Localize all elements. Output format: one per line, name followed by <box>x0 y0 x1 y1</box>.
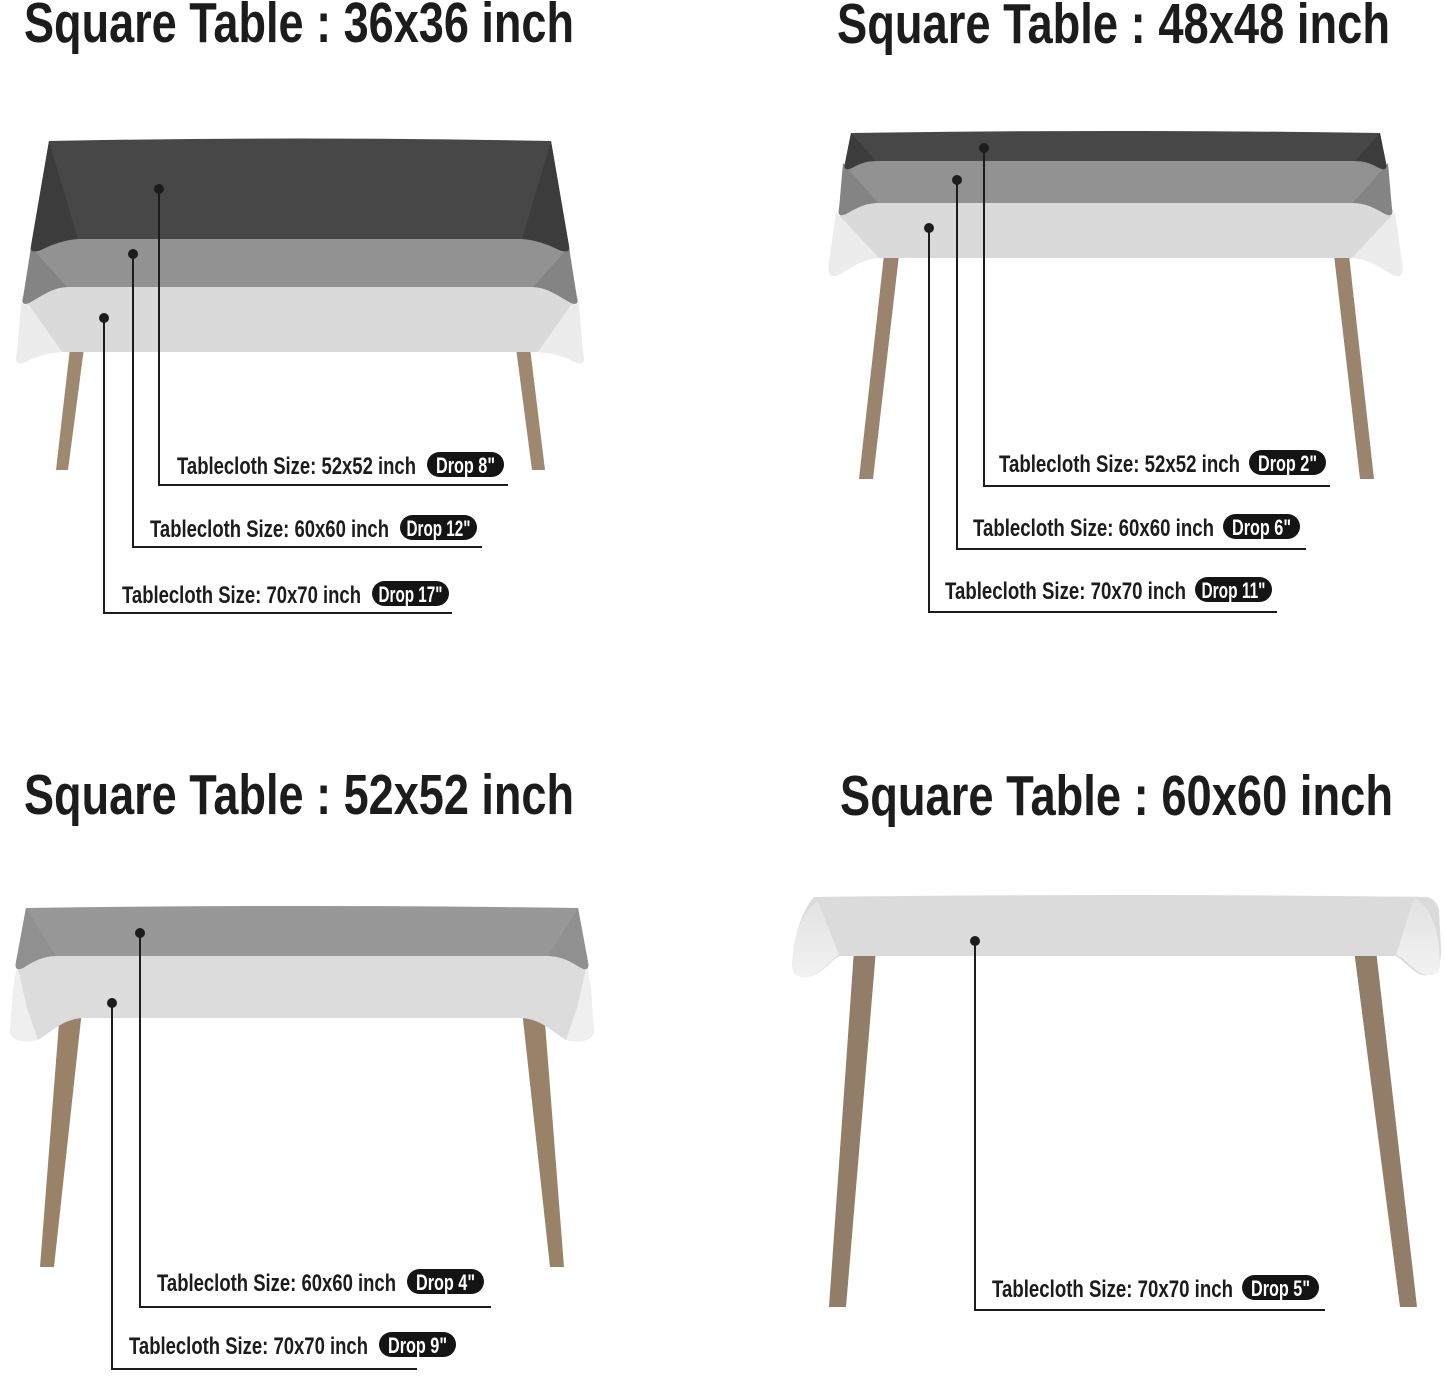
svg-text:Square Table : 60x60 inch: Square Table : 60x60 inch <box>840 764 1393 828</box>
svg-text:Drop 9": Drop 9" <box>388 1333 447 1358</box>
svg-text:Drop 11": Drop 11" <box>1202 578 1266 603</box>
svg-text:Tablecloth Size: 70x70 inch: Tablecloth Size: 70x70 inch <box>129 1333 368 1360</box>
svg-text:Drop 6": Drop 6" <box>1232 515 1291 540</box>
svg-text:Tablecloth Size: 52x52 inch: Tablecloth Size: 52x52 inch <box>999 451 1240 478</box>
svg-text:Tablecloth Size: 60x60 inch: Tablecloth Size: 60x60 inch <box>973 515 1214 542</box>
svg-text:Tablecloth Size: 70x70 inch: Tablecloth Size: 70x70 inch <box>122 582 361 609</box>
svg-text:Drop 5": Drop 5" <box>1251 1276 1310 1301</box>
svg-text:Square Table : 36x36 inch: Square Table : 36x36 inch <box>24 0 574 55</box>
svg-text:Drop 8": Drop 8" <box>436 453 495 478</box>
svg-text:Drop 2": Drop 2" <box>1258 451 1317 476</box>
svg-text:Tablecloth Size: 52x52 inch: Tablecloth Size: 52x52 inch <box>177 453 416 480</box>
svg-text:Drop 12": Drop 12" <box>407 516 471 541</box>
svg-text:Square Table : 52x52 inch: Square Table : 52x52 inch <box>24 763 574 827</box>
svg-text:Tablecloth Size: 60x60 inch: Tablecloth Size: 60x60 inch <box>157 1270 396 1297</box>
svg-text:Tablecloth Size: 70x70 inch: Tablecloth Size: 70x70 inch <box>992 1276 1233 1303</box>
svg-text:Drop 4": Drop 4" <box>416 1270 475 1295</box>
svg-text:Square Table : 48x48 inch: Square Table : 48x48 inch <box>837 0 1390 56</box>
svg-text:Drop 17": Drop 17" <box>379 582 443 607</box>
svg-text:Tablecloth Size: 70x70 inch: Tablecloth Size: 70x70 inch <box>945 578 1186 605</box>
svg-text:Tablecloth Size: 60x60 inch: Tablecloth Size: 60x60 inch <box>150 516 389 543</box>
